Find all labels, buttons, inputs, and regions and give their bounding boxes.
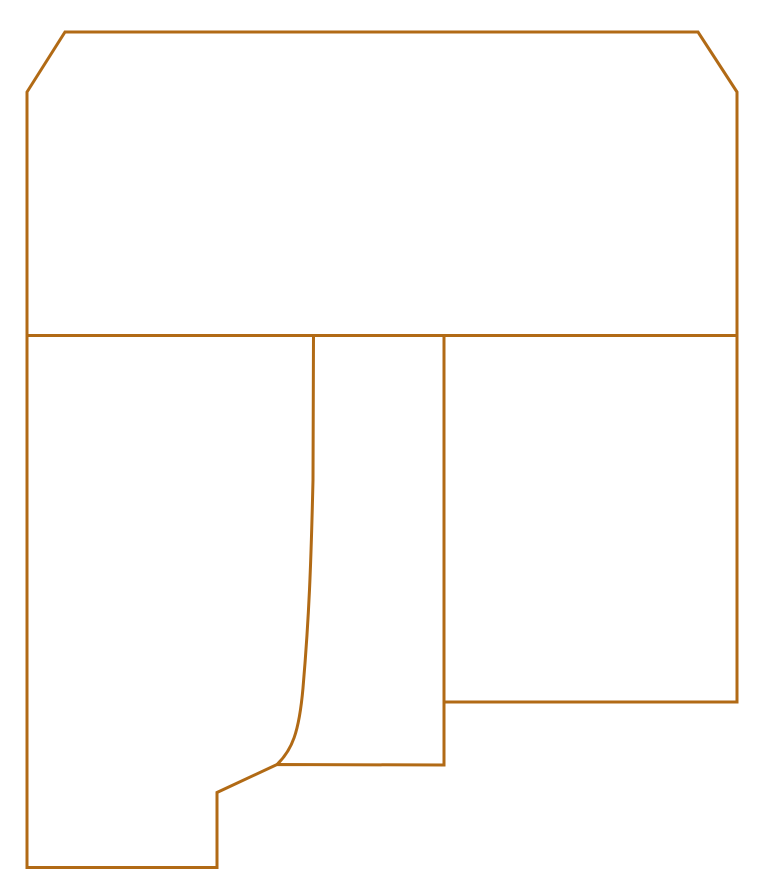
outer-boundary-outline (27, 32, 737, 868)
drawing-canvas (0, 0, 777, 896)
line-drawing-svg (0, 0, 777, 896)
curved-profile-line (277, 336, 314, 765)
